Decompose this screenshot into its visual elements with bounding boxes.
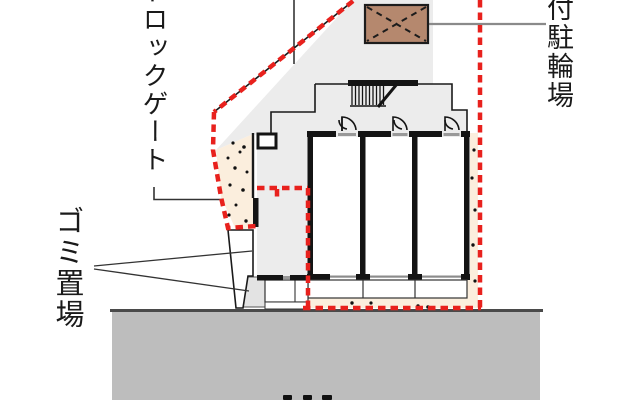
unit-room bbox=[365, 137, 412, 274]
site-plan-figure: トロックゲート 付駐輪場 ゴミ置場 bbox=[0, 0, 640, 400]
entry-hall bbox=[257, 133, 308, 276]
corridor bbox=[271, 110, 467, 133]
cutoff-text-marks bbox=[283, 395, 332, 400]
wall-segment bbox=[257, 275, 283, 281]
approach-path bbox=[216, 134, 253, 230]
wall-north bbox=[307, 131, 470, 137]
entrance-step bbox=[265, 280, 308, 302]
unit-room bbox=[313, 137, 360, 274]
garbage-leader-2 bbox=[94, 269, 249, 291]
bicycle-canopy bbox=[365, 5, 546, 43]
road bbox=[110, 309, 543, 400]
lock-gate-leader bbox=[154, 187, 223, 200]
garbage-leader-1 bbox=[94, 251, 252, 266]
road-surface bbox=[112, 311, 540, 400]
entry-door-sill bbox=[283, 276, 290, 279]
label-garbage-storage: ゴミ置場 bbox=[53, 206, 82, 330]
dwelling-units bbox=[307, 117, 470, 280]
wall-south bbox=[307, 274, 470, 280]
label-covered-bicycle-parking: 付駐輪場 bbox=[544, 0, 571, 110]
wall-segment bbox=[253, 198, 259, 227]
unit-room bbox=[417, 137, 464, 274]
meter-box bbox=[258, 134, 276, 148]
porch-row bbox=[308, 280, 467, 298]
wall-segment bbox=[290, 275, 307, 281]
entrance-step-lower bbox=[265, 302, 308, 309]
label-auto-lock-gate: トロックゲート bbox=[140, 0, 166, 174]
